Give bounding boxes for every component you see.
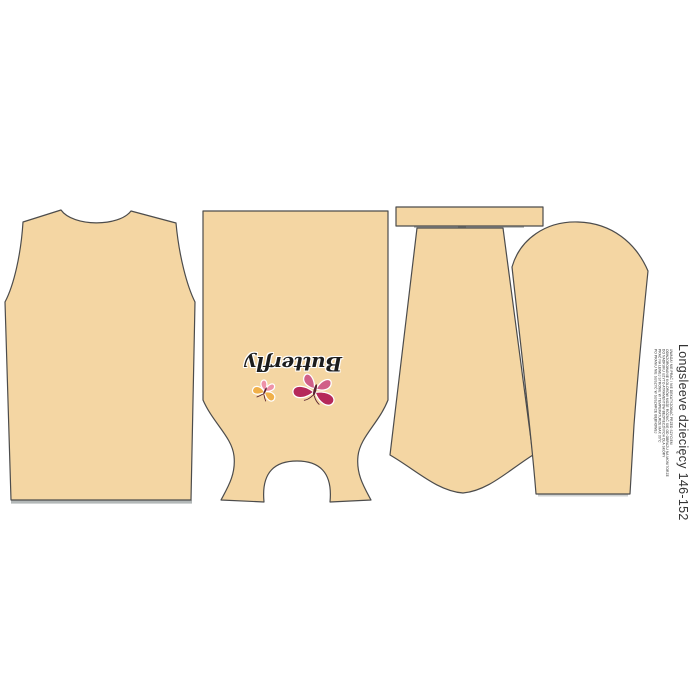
fabric-panel-photo: Butterfly Longsleeve dziecięcy 146-152 U… [0, 0, 700, 700]
neckband-strip-shape [396, 207, 543, 226]
panel-side-label: Longsleeve dziecięcy 146-152 UWAGA! NIE … [653, 344, 690, 512]
care-instruction-line: DO NADRUKU UŻYTO ATRAMENTÓW BEZPIECZNYCH… [660, 349, 664, 512]
pattern-pieces-graphic [0, 0, 700, 700]
motif-script-text: Butterfly [256, 346, 342, 376]
back-piece-shape [5, 210, 195, 500]
care-instruction-line: PO PRANIU NIE SUSZYĆ W SUSZARCE BĘBNOWEJ [653, 349, 657, 512]
panel-size-label: Longsleeve dziecięcy 146-152 [676, 344, 690, 512]
care-instructions: UWAGA! NIE PRAĆ / NIE DEKATYZOWAĆ PRZED … [653, 344, 672, 512]
sleeve-piece-2-shape [512, 222, 648, 494]
fabric-shadow [538, 495, 628, 497]
